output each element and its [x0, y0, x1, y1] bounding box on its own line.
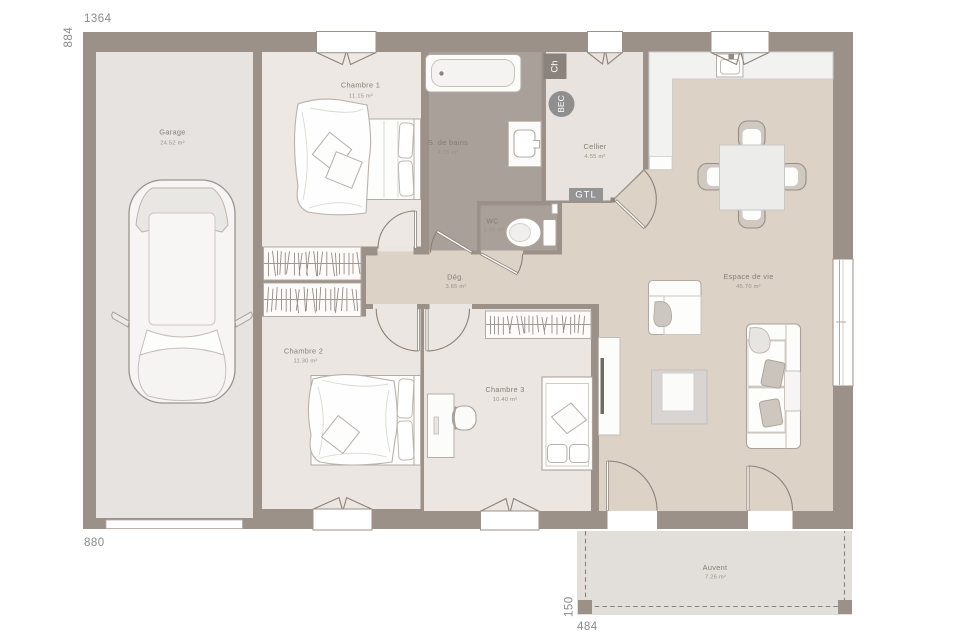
svg-text:Chambre 2: Chambre 2 — [284, 347, 323, 356]
svg-text:1.30 m²: 1.30 m² — [483, 228, 504, 234]
svg-text:45.70 m²: 45.70 m² — [736, 284, 760, 290]
svg-text:Auvent: Auvent — [703, 563, 728, 572]
svg-text:Espace de vie: Espace de vie — [723, 272, 773, 281]
svg-text:S. de bains: S. de bains — [428, 138, 468, 147]
svg-text:3.65 m²: 3.65 m² — [445, 284, 466, 290]
svg-text:Garage: Garage — [159, 128, 185, 137]
svg-text:Chambre 1: Chambre 1 — [341, 81, 380, 90]
svg-text:GTL: GTL — [575, 190, 596, 201]
svg-text:BEC: BEC — [556, 95, 566, 112]
svg-text:11.15 m²: 11.15 m² — [349, 94, 373, 100]
svg-text:Cellier: Cellier — [583, 142, 606, 151]
svg-text:11.30 m²: 11.30 m² — [293, 359, 317, 365]
svg-text:Chambre 3: Chambre 3 — [485, 385, 524, 394]
svg-text:Ch: Ch — [550, 60, 561, 72]
svg-text:150: 150 — [564, 596, 576, 617]
svg-text:24.52 m²: 24.52 m² — [160, 141, 184, 147]
svg-text:WC: WC — [486, 219, 498, 226]
svg-text:884: 884 — [63, 27, 75, 48]
svg-text:Dég.: Dég. — [447, 273, 464, 282]
svg-text:7.26 m²: 7.26 m² — [705, 575, 726, 581]
svg-text:880: 880 — [84, 537, 105, 549]
svg-text:1364: 1364 — [84, 13, 112, 25]
svg-text:4.05 m²: 4.05 m² — [437, 150, 458, 156]
svg-text:10.40 m²: 10.40 m² — [493, 397, 517, 403]
svg-text:484: 484 — [577, 621, 598, 633]
svg-text:4.55 m²: 4.55 m² — [584, 154, 605, 160]
